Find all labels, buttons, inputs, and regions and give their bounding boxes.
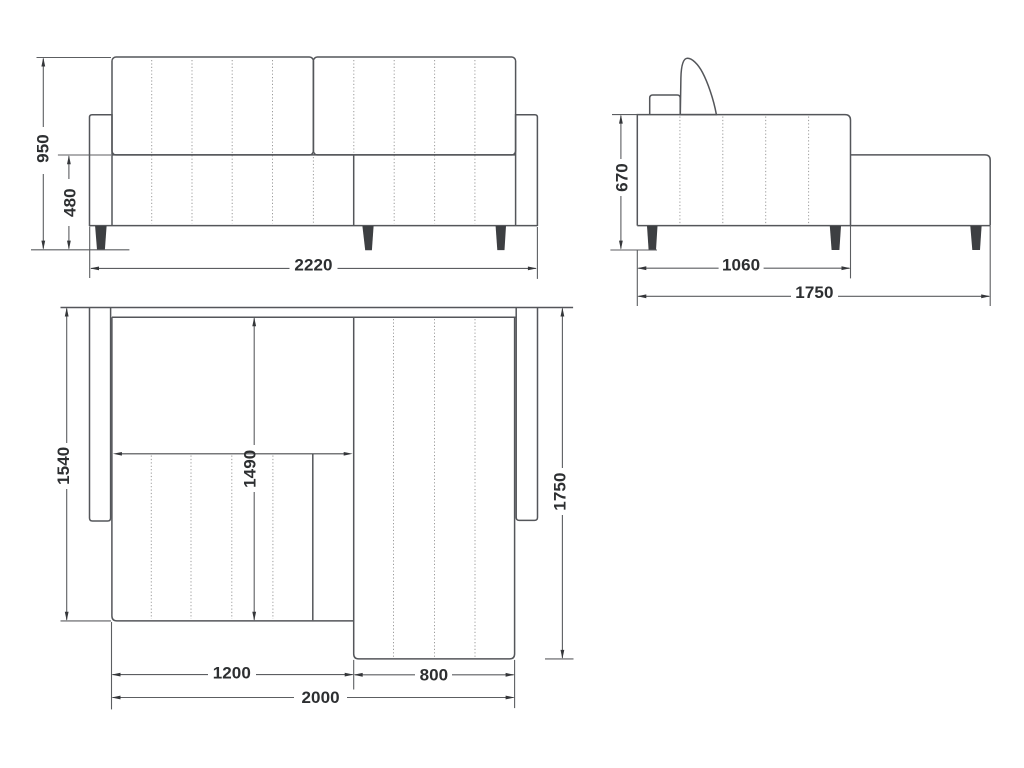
svg-text:1060: 1060 <box>722 255 760 274</box>
svg-text:1540: 1540 <box>54 447 73 485</box>
svg-text:950: 950 <box>34 134 53 163</box>
svg-text:2220: 2220 <box>294 255 332 274</box>
svg-text:1750: 1750 <box>551 472 570 510</box>
svg-text:1200: 1200 <box>213 664 251 683</box>
svg-text:1490: 1490 <box>241 450 260 488</box>
svg-text:1750: 1750 <box>795 283 833 302</box>
svg-text:670: 670 <box>612 163 631 192</box>
svg-text:2000: 2000 <box>301 688 339 707</box>
svg-text:480: 480 <box>60 188 79 217</box>
svg-text:800: 800 <box>420 666 449 685</box>
